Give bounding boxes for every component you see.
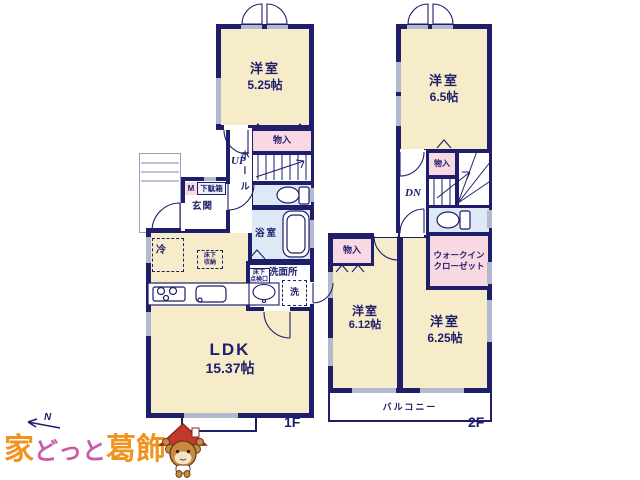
floor1-caption: 1F [284,414,300,430]
mascot-icon [160,424,206,478]
floorplan-page: LDK 15.37帖 洋室 5.25帖 物入 浴室 洗面所 床下 点検口 洗 ホ… [0,0,640,480]
staircase-1f [250,152,314,184]
toilet-1f [250,182,314,208]
north-label: N [44,412,51,423]
stairs-up-label: UP [231,155,246,167]
closet-2f-left-label: 物入 [343,245,361,256]
underfloor-hatch-l1: 床下 [253,270,265,277]
closet-1f: 物入 [250,128,314,154]
floor2-caption: 2F [468,414,484,430]
shoe-cabinet-m: M [185,182,197,195]
room-western-525: 洋室 5.25帖 [216,24,314,130]
casement-window-1f [242,4,287,24]
walk-in-closet: ウォークイン クローゼット [426,232,492,290]
room-65-area: 6.5帖 [430,90,459,105]
logo-part2: どっと [34,431,106,466]
room-612-area: 6.12帖 [349,319,381,333]
underfloor-storage: 床下 収納 [197,250,223,269]
stairs-dn-label: DN [405,187,421,199]
washroom-label: 洗面所 [269,267,298,279]
entrance-label: 玄関 [192,201,213,213]
closet-2f-top: 物入 [426,150,458,178]
entrance-genkan: M 下駄箱 玄関 [181,177,230,233]
bathroom-label: 浴室 [255,228,278,240]
fridge-space: 冷 [152,238,184,272]
underfloor-hatch-l2: 点検口 [250,277,268,284]
room-625-name: 洋室 [430,314,460,330]
underfloor-storage-l2: 収納 [204,260,216,267]
bathroom-1f: 浴室 [248,206,314,263]
washroom-1f: 洗面所 床下 点検口 洗 [246,261,314,311]
closet-2f-left: 物入 [330,236,374,266]
closet-1f-label: 物入 [273,135,291,146]
room-525-area: 5.25帖 [247,78,282,93]
room-625-area: 6.25帖 [427,331,462,346]
ldk-area: 15.37帖 [205,360,254,378]
underfloor-storage-l1: 床下 [204,253,216,260]
wic-line2: クローゼット [433,261,484,272]
closet-2f-top-label: 物入 [434,159,450,169]
room-525-name: 洋室 [250,61,280,77]
shoe-cabinet-label: 下駄箱 [200,184,223,193]
fridge-label: 冷 [156,241,166,256]
washing-machine-label: 洗 [290,287,299,298]
logo-part3: 葛飾 [106,424,166,468]
washing-machine: 洗 [282,280,307,306]
toilet-2f [426,205,492,235]
shoe-cabinet-m-label: M [188,184,195,194]
casement-window-2f [408,4,453,24]
room-65-name: 洋室 [429,73,459,89]
underfloor-hatch: 床下 点検口 [248,268,270,285]
balcony-label: バルコニー [383,400,438,413]
staircase-2f-winder [456,150,492,208]
entrance-porch [139,153,181,233]
room-612-name: 洋室 [352,304,378,319]
wic-line1: ウォークイン [433,250,484,261]
room-western-65: 洋室 6.5帖 [396,24,492,154]
shoe-cabinet: 下駄箱 [197,182,226,195]
company-logo: 家 どっと 葛飾 [4,424,166,468]
ldk-name: LDK [210,339,251,360]
plan-lineart-overlay [0,0,640,480]
logo-part1: 家 [4,424,34,468]
